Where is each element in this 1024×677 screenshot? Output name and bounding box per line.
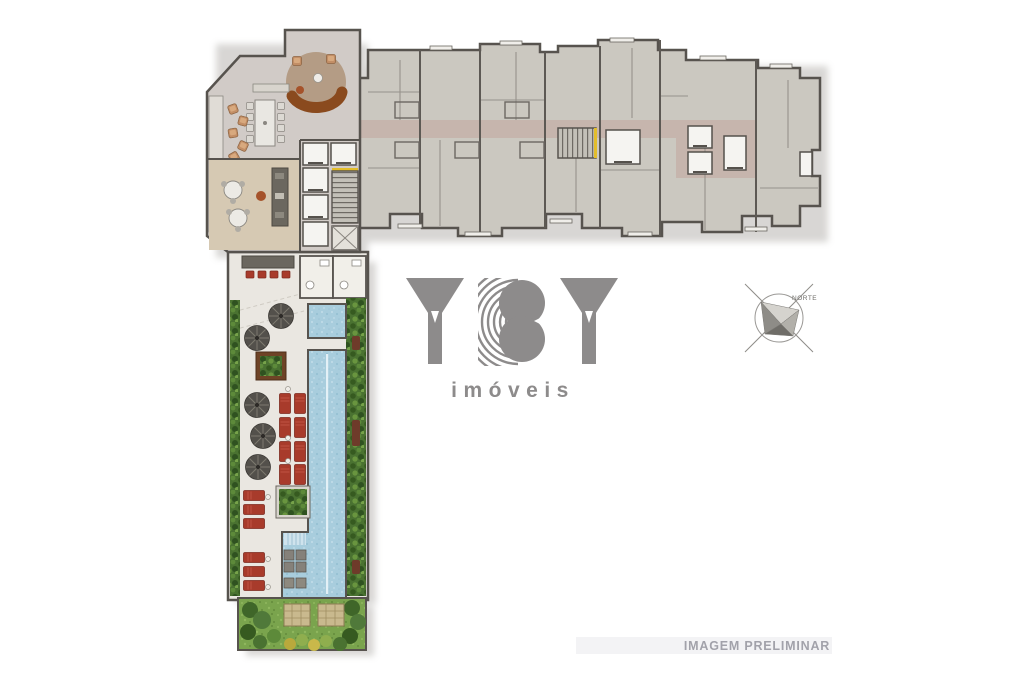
pool-steps xyxy=(284,533,306,545)
service-shaft xyxy=(332,226,358,250)
compass-label: NORTE xyxy=(792,295,817,302)
pool-lane-line xyxy=(326,354,328,594)
logo-tagline: imóveis xyxy=(451,379,575,402)
sideboard xyxy=(253,84,289,92)
pool-bar-counter xyxy=(242,256,294,268)
planter-mid xyxy=(276,486,310,518)
watermark-text: IMAGEM PRELIMINAR xyxy=(684,639,830,653)
pool-terrace xyxy=(228,252,368,600)
floorplan-svg: imóveis NORTE IMAGEM PRELIMINAR xyxy=(0,0,1024,677)
compass-rose xyxy=(761,302,799,336)
lounge-armchair xyxy=(293,57,302,66)
core-stairs xyxy=(332,171,358,223)
planter-upper xyxy=(256,352,286,380)
compass: NORTE xyxy=(745,284,817,352)
wing-stairs xyxy=(558,128,596,158)
coffee-table xyxy=(314,74,323,83)
yby-logo: imóveis xyxy=(406,268,618,402)
table-centerpiece xyxy=(263,121,267,125)
pouf xyxy=(296,86,304,94)
wing-stairs-rail-yellow xyxy=(594,128,597,158)
logo-letter-b xyxy=(464,268,572,376)
floorplan-image: imóveis NORTE IMAGEM PRELIMINAR xyxy=(0,0,1024,677)
hedge-left xyxy=(230,300,240,596)
accent-pouf xyxy=(256,191,266,201)
apartment-wing xyxy=(355,38,820,236)
lounge-armchair xyxy=(327,55,336,64)
logo-letter-y2 xyxy=(560,278,618,364)
garden xyxy=(238,598,366,651)
watermark: IMAGEM PRELIMINAR xyxy=(576,637,832,654)
logo-letter-y1 xyxy=(406,278,464,364)
spa-pool xyxy=(308,304,346,338)
pool-restrooms xyxy=(300,256,366,298)
